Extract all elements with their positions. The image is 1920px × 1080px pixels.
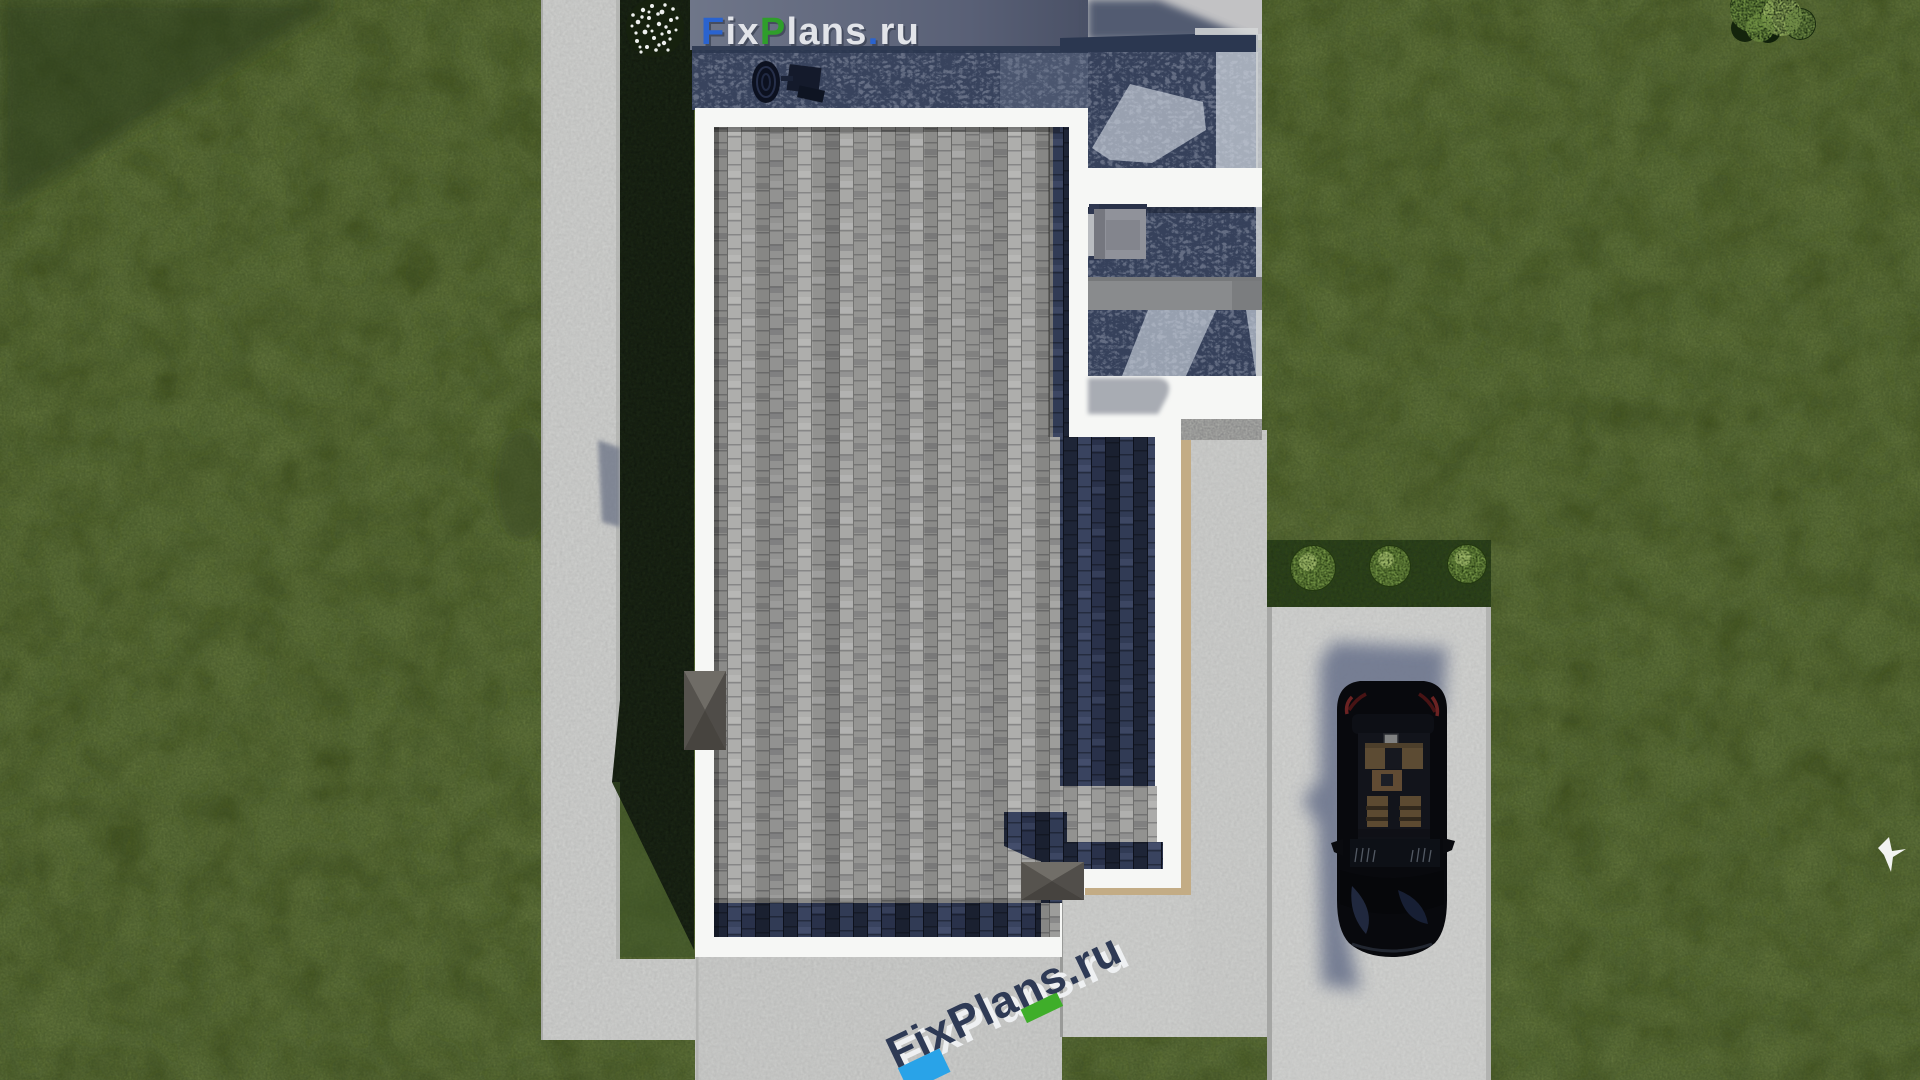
svg-text:FixPlans.ru: FixPlans.ru [701, 11, 920, 53]
